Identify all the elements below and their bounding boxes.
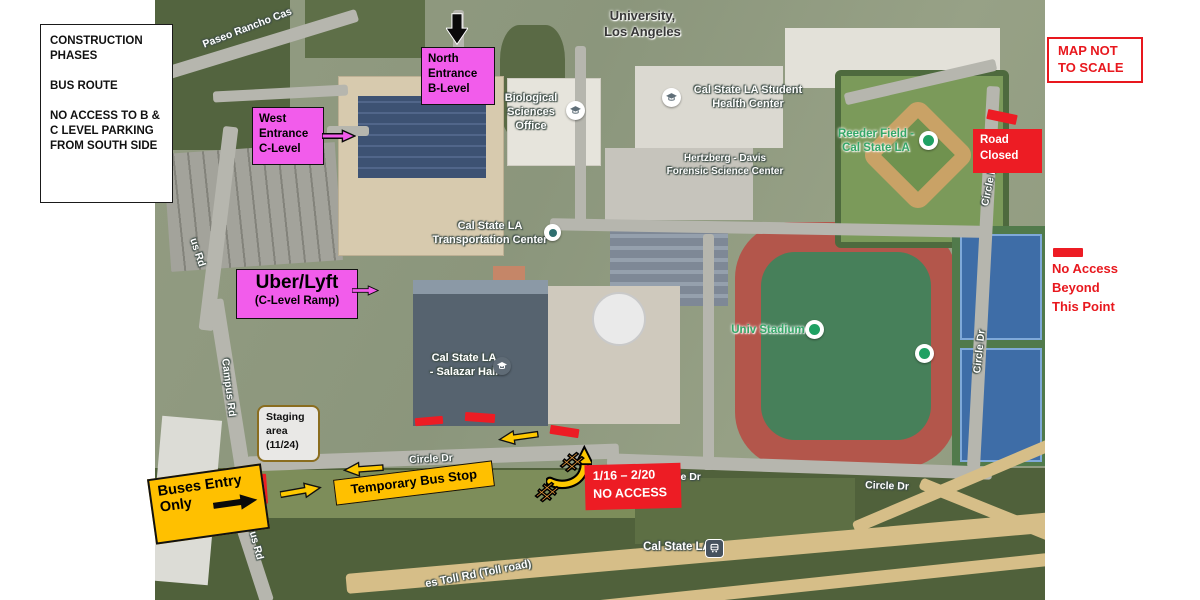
- map-label-circle-dr: Circle Dr: [858, 479, 916, 494]
- construction-map-page: University, Los Angeles Biological Scien…: [0, 0, 1200, 600]
- west-entrance-callout: West Entrance C-Level: [252, 107, 324, 165]
- location-pin-icon: [919, 131, 938, 150]
- map-not-to-scale-note: MAP NOT TO SCALE: [1047, 37, 1143, 83]
- no-access-legend-note: No Access Beyond This Point: [1052, 260, 1162, 317]
- map-solar-panels: [358, 96, 486, 178]
- uber-lyft-callout: Uber/Lyft (C-Level Ramp): [236, 269, 358, 319]
- map-label-hertzberg-davis: Hertzberg - Davis Forensic Science Cente…: [658, 153, 792, 178]
- map-label-transportation-center: Cal State LA Transportation Center: [432, 220, 548, 248]
- north-entrance-arrow-icon: [446, 12, 468, 46]
- uber-lyft-subtitle: (C-Level Ramp): [241, 294, 353, 309]
- map-label-student-health-center: Cal State LA Student Health Center: [686, 84, 810, 112]
- uber-lyft-title: Uber/Lyft: [241, 273, 353, 294]
- location-pin-icon: [805, 320, 824, 339]
- staging-area-callout: Staging area (11/24): [257, 405, 320, 462]
- uber-lyft-arrow-icon: [352, 283, 379, 298]
- no-access-label: NO ACCESS: [593, 483, 681, 502]
- road-closed-callout: Road Closed: [973, 129, 1042, 173]
- map-stadium-field: [761, 252, 931, 440]
- map-label-biological-sciences: Biological Sciences Office: [496, 92, 566, 133]
- graduation-cap-icon: [566, 101, 585, 120]
- map-label-cal-state-la-station: Cal State LA: [643, 540, 711, 554]
- location-pin-icon: [915, 344, 934, 363]
- map-road: [575, 46, 586, 228]
- construction-legend-box: CONSTRUCTION PHASES BUS ROUTE NO ACCESS …: [40, 24, 173, 203]
- graduation-cap-icon: [493, 357, 511, 375]
- location-pin-icon: [544, 224, 561, 241]
- west-entrance-arrow-icon: [322, 126, 356, 146]
- no-access-dates-callout: 1/16 – 2/20 NO ACCESS: [584, 463, 681, 510]
- graduation-cap-icon: [662, 88, 681, 107]
- map-tennis-courts: [960, 234, 1042, 340]
- map-label-salazar-hall: Cal State LA - Salazar Hall: [426, 352, 502, 380]
- no-access-bar-icon: [1053, 248, 1083, 257]
- map-label-reeder-field: Reeder Field - Cal State LA: [834, 127, 918, 156]
- transit-station-icon: [705, 539, 724, 558]
- map-water-tank: [592, 292, 646, 346]
- map-label-univ-stadium: Univ Stadium: [730, 323, 806, 337]
- map-label-university: University, Los Angeles: [585, 8, 700, 41]
- north-entrance-callout: North Entrance B-Level: [421, 47, 495, 105]
- map-road: [703, 234, 714, 470]
